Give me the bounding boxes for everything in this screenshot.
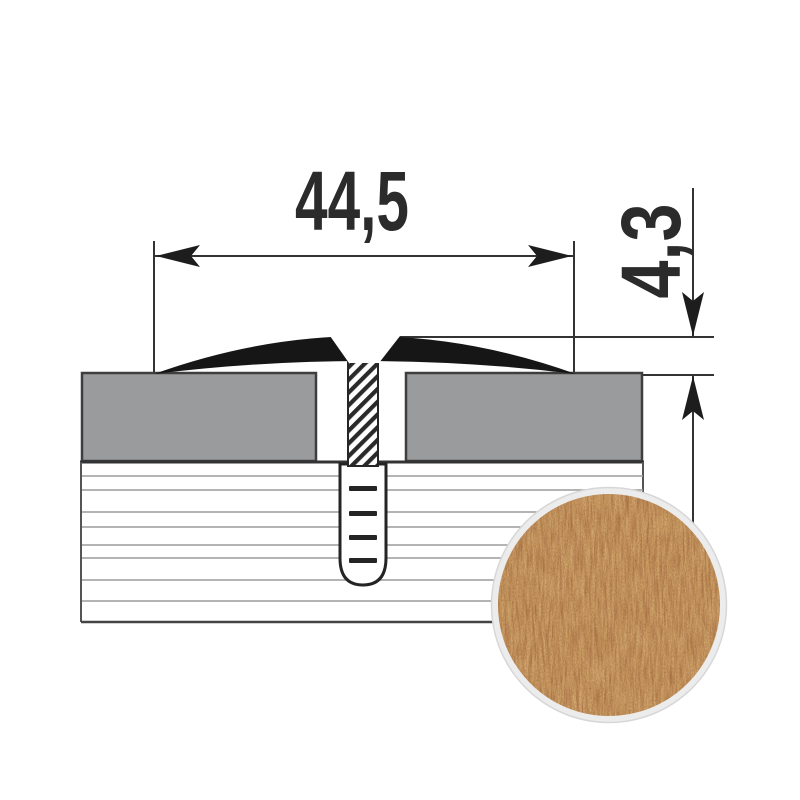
floor-panel-left	[82, 373, 316, 461]
anchor-thread-dash	[349, 558, 377, 563]
screw-anchor	[340, 464, 386, 585]
floor-panel-right	[406, 373, 642, 461]
anchor-thread-dash	[349, 535, 377, 540]
wood-swatch	[492, 488, 727, 723]
profile-technical-drawing: 44,5 4,3	[0, 0, 800, 800]
product-image: 44,5 4,3	[0, 0, 800, 800]
height-dimension-label: 4,3	[604, 204, 698, 299]
screw-shaft	[348, 360, 378, 466]
anchor-thread-dash	[349, 486, 377, 491]
width-dimension-label: 44,5	[295, 154, 409, 248]
anchor-thread-dash	[349, 511, 377, 516]
